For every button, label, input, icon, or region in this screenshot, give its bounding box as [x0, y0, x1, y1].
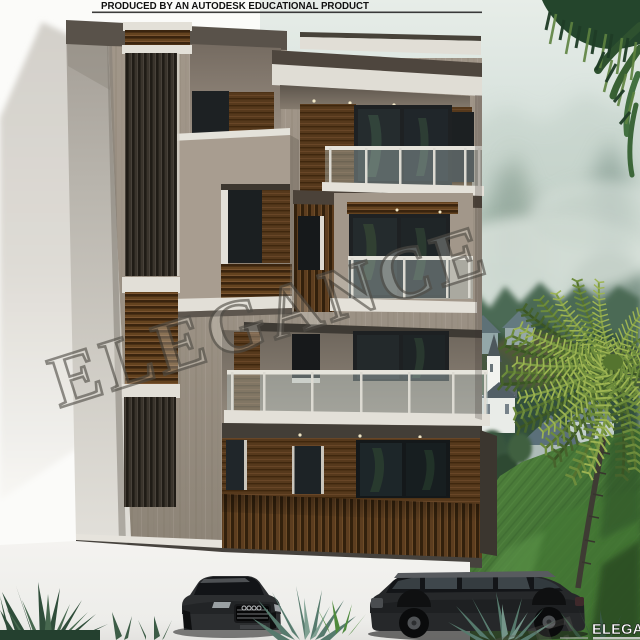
- svg-text:PRODUCED BY AN AUTODESK EDUCAT: PRODUCED BY AN AUTODESK EDUCATIONAL PROD…: [101, 0, 370, 12]
- svg-text:ELEGAN: ELEGAN: [592, 622, 640, 638]
